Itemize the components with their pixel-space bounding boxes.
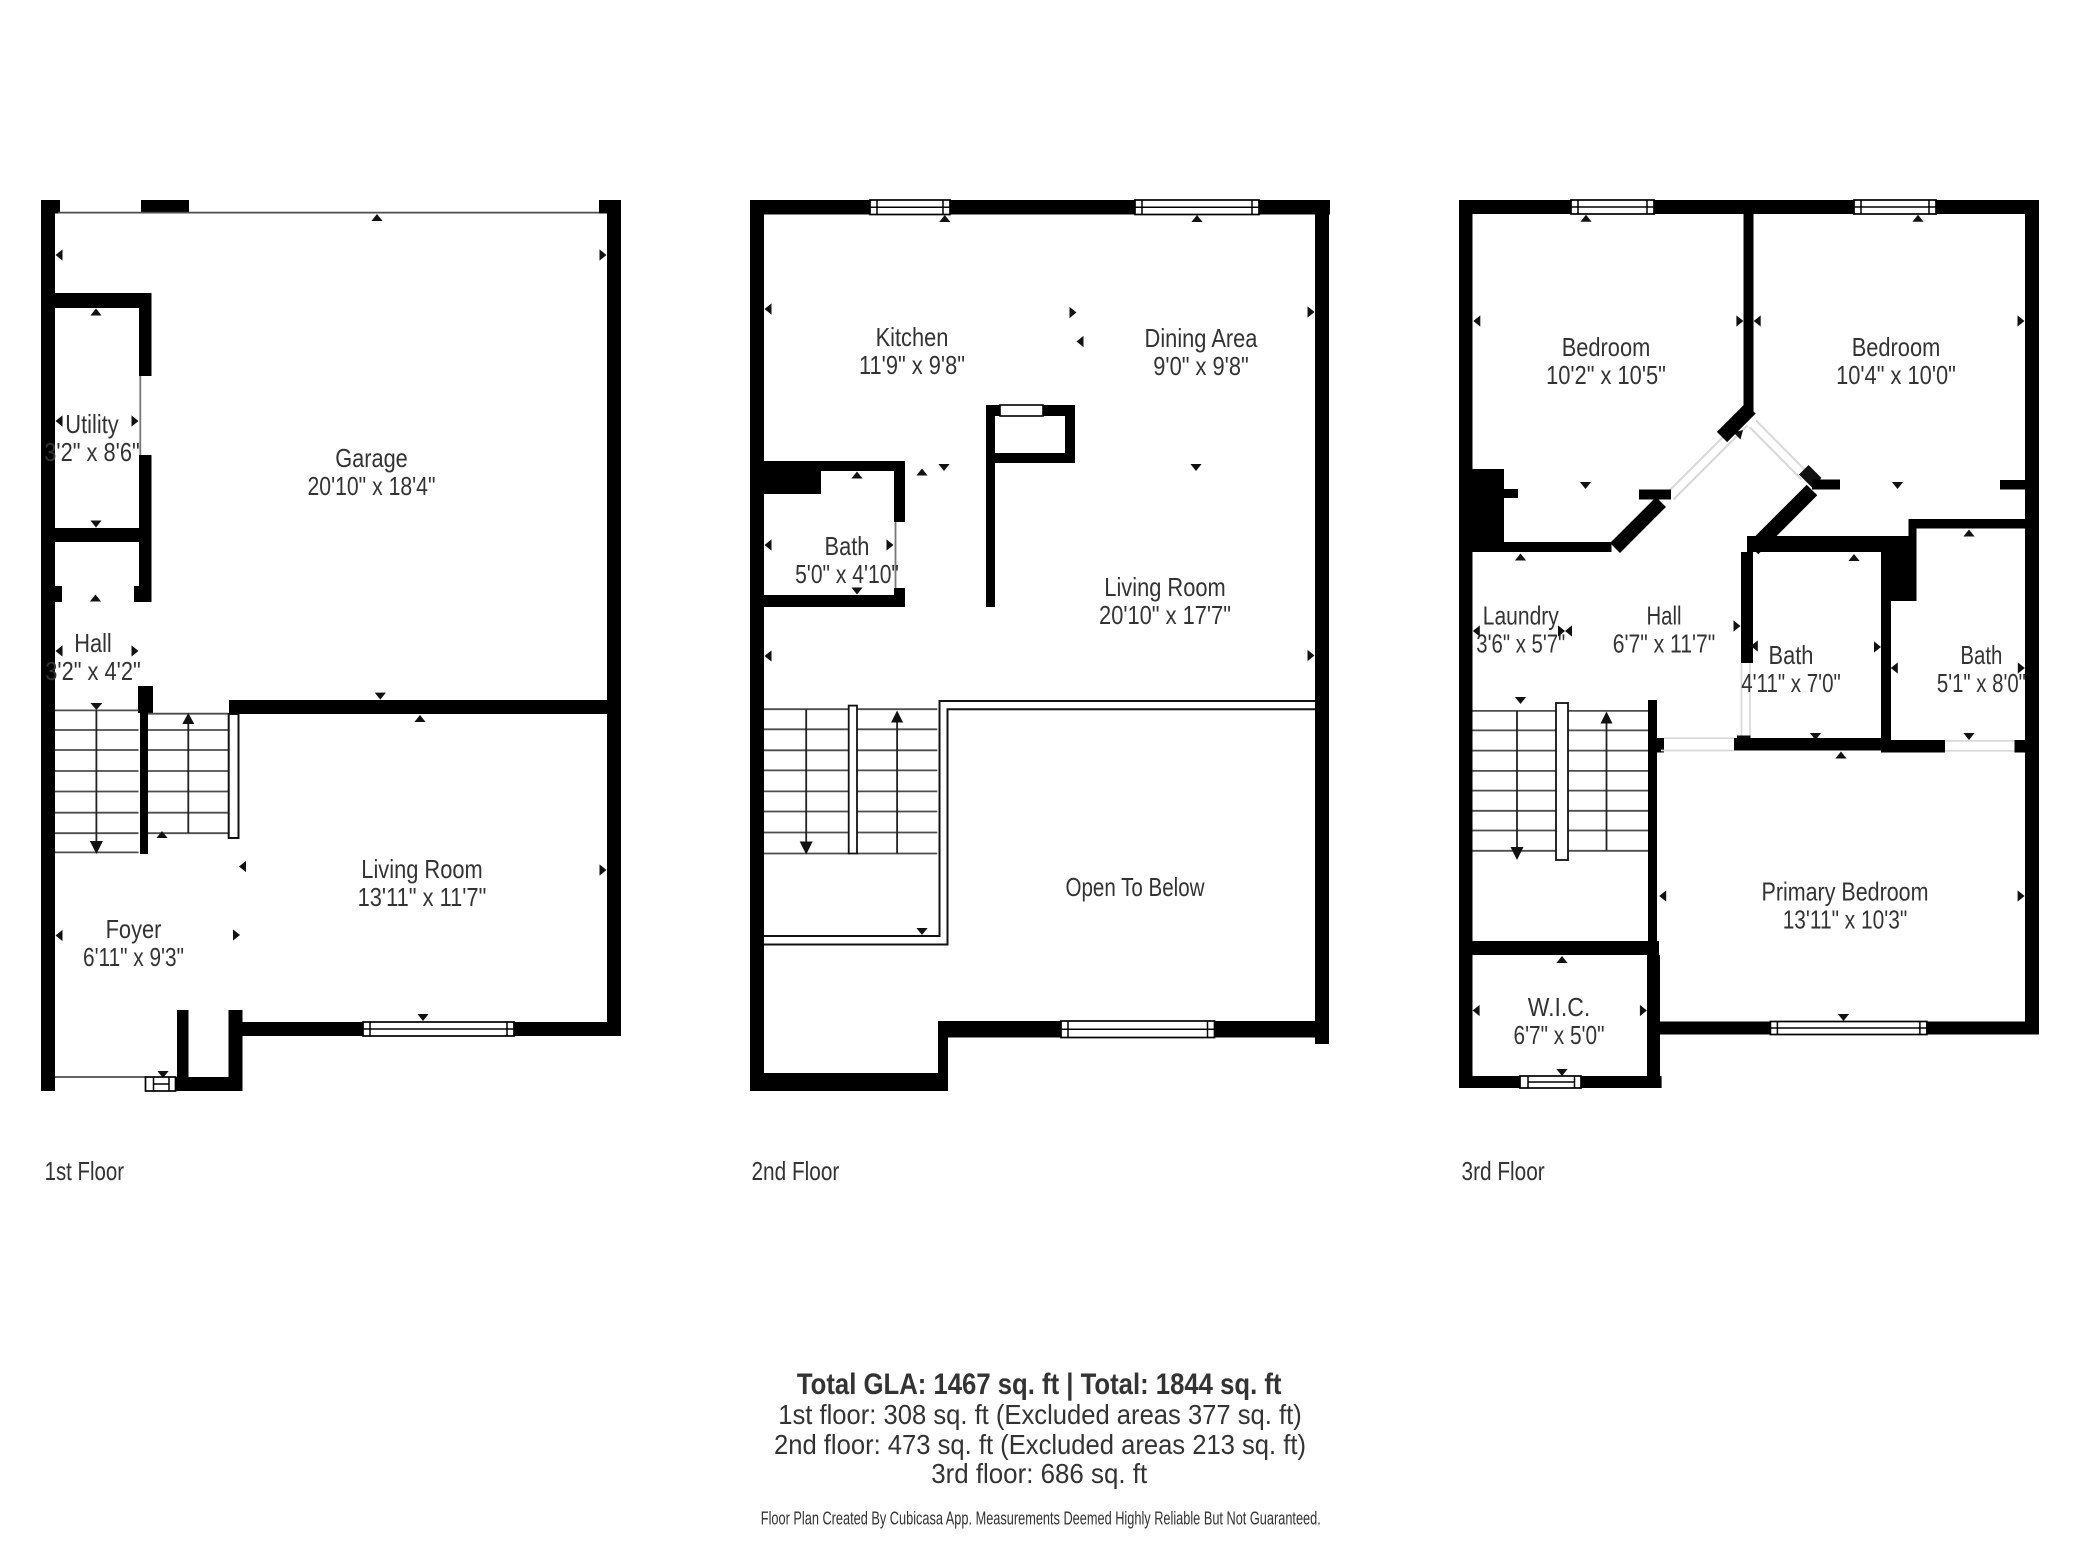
svg-text:Hall: Hall bbox=[1647, 601, 1682, 631]
svg-text:20'10" x 18'4": 20'10" x 18'4" bbox=[308, 471, 436, 501]
svg-text:Utility: Utility bbox=[65, 409, 118, 439]
svg-text:13'11" x 11'7": 13'11" x 11'7" bbox=[358, 882, 487, 912]
svg-text:Hall: Hall bbox=[74, 628, 112, 658]
svg-text:2nd floor: 473 sq. ft (Exclude: 2nd floor: 473 sq. ft (Excluded areas 21… bbox=[774, 1429, 1306, 1460]
svg-text:Foyer: Foyer bbox=[106, 914, 162, 944]
svg-text:3rd floor: 686 sq. ft: 3rd floor: 686 sq. ft bbox=[931, 1458, 1147, 1489]
svg-text:Bath: Bath bbox=[1769, 640, 1814, 670]
svg-text:3'6" x 5'7": 3'6" x 5'7" bbox=[1476, 629, 1565, 659]
svg-text:Primary Bedroom: Primary Bedroom bbox=[1762, 877, 1929, 907]
svg-text:6'7" x 11'7": 6'7" x 11'7" bbox=[1613, 629, 1716, 659]
svg-text:11'9" x 9'8": 11'9" x 9'8" bbox=[859, 350, 965, 380]
svg-text:10'2" x 10'5": 10'2" x 10'5" bbox=[1546, 360, 1666, 390]
svg-text:3rd Floor: 3rd Floor bbox=[1462, 1156, 1545, 1186]
svg-text:13'11" x 10'3": 13'11" x 10'3" bbox=[1783, 905, 1908, 935]
svg-text:5'1" x 8'0": 5'1" x 8'0" bbox=[1937, 668, 2026, 698]
svg-text:3'2" x 4'2": 3'2" x 4'2" bbox=[45, 656, 141, 686]
svg-text:W.I.C.: W.I.C. bbox=[1528, 992, 1591, 1022]
svg-text:1st Floor: 1st Floor bbox=[45, 1156, 125, 1186]
svg-text:20'10" x 17'7": 20'10" x 17'7" bbox=[1099, 600, 1231, 630]
svg-text:6'11" x 9'3": 6'11" x 9'3" bbox=[83, 942, 184, 972]
svg-text:Living Room: Living Room bbox=[1104, 572, 1225, 602]
svg-text:Living Room: Living Room bbox=[361, 854, 482, 884]
svg-text:Laundry: Laundry bbox=[1483, 601, 1559, 631]
svg-text:Dining Area: Dining Area bbox=[1145, 323, 1258, 353]
svg-text:Bath: Bath bbox=[825, 531, 870, 561]
svg-text:10'4" x 10'0": 10'4" x 10'0" bbox=[1836, 360, 1956, 390]
svg-text:Bedroom: Bedroom bbox=[1562, 332, 1651, 362]
svg-text:Kitchen: Kitchen bbox=[876, 322, 949, 352]
svg-text:Total GLA: 1467 sq. ft | Total: Total GLA: 1467 sq. ft | Total: 1844 sq.… bbox=[797, 1368, 1282, 1401]
svg-text:6'7" x 5'0": 6'7" x 5'0" bbox=[1514, 1020, 1605, 1050]
svg-text:3'2" x 8'6": 3'2" x 8'6" bbox=[44, 437, 140, 467]
svg-text:Open To Below: Open To Below bbox=[1066, 872, 1205, 902]
svg-text:Bedroom: Bedroom bbox=[1852, 332, 1941, 362]
svg-text:5'0" x 4'10": 5'0" x 4'10" bbox=[795, 559, 899, 589]
svg-text:4'11" x 7'0": 4'11" x 7'0" bbox=[1741, 668, 1841, 698]
svg-text:1st floor: 308 sq. ft (Exclude: 1st floor: 308 sq. ft (Excluded areas 37… bbox=[778, 1399, 1302, 1430]
svg-text:Bath: Bath bbox=[1960, 640, 2002, 670]
svg-text:2nd Floor: 2nd Floor bbox=[752, 1156, 840, 1186]
svg-text:Floor Plan Created By Cubicasa: Floor Plan Created By Cubicasa App. Meas… bbox=[761, 1509, 1321, 1529]
svg-text:Garage: Garage bbox=[335, 443, 408, 473]
svg-text:9'0" x 9'8": 9'0" x 9'8" bbox=[1153, 351, 1249, 381]
